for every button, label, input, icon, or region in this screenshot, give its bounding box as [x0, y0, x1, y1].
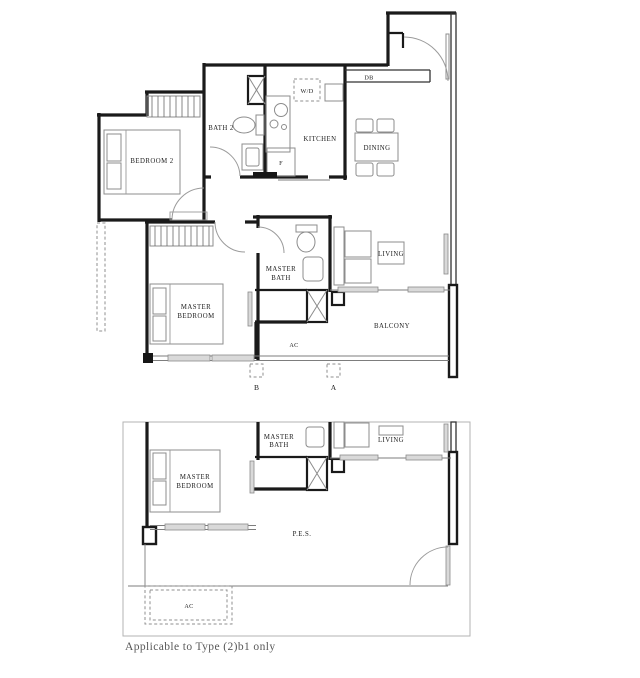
- marker-a-label: A: [331, 383, 337, 392]
- floorplan-canvas: DB: [0, 0, 640, 678]
- entrance-door: [404, 34, 449, 81]
- pes-label: P.E.S.: [293, 531, 312, 538]
- master-bedroom-door-leaf: [248, 292, 252, 326]
- corridor-stub: [170, 212, 207, 220]
- kitchen-hob-small: [282, 125, 287, 130]
- lower-bath-sink: [306, 427, 324, 447]
- upper-walls-path: [97, 12, 456, 363]
- upper-right-wall-thick: [449, 285, 457, 377]
- marker-b-label: B: [254, 383, 259, 392]
- lower-window-bar: [208, 524, 248, 530]
- wall-stub: [143, 353, 153, 363]
- master-bath-sink: [303, 257, 323, 281]
- balcony: BALCONY AC: [143, 287, 450, 363]
- shaft-kitchen: [248, 76, 265, 104]
- shaft-side-box: [332, 292, 344, 305]
- master-bedroom-label-1: MASTER: [181, 304, 211, 311]
- lower-bed: [150, 450, 220, 512]
- lower-master-bath: MASTER BATH: [250, 427, 324, 493]
- washer-dryer: W/D: [294, 79, 320, 101]
- dining-label: DINING: [364, 145, 391, 152]
- lower-master-bath-label-2: BATH: [269, 442, 289, 449]
- pes-area: AC P.E.S.: [128, 531, 450, 624]
- lower-living: LIVING: [330, 422, 451, 460]
- master-bedroom-label-2: BEDROOM: [177, 313, 214, 320]
- living: LIVING: [334, 227, 448, 285]
- wd-label: W/D: [301, 88, 314, 95]
- upper-floor-plan: DB: [97, 12, 457, 392]
- living-sofa: [334, 227, 371, 285]
- master-bath-toilet: [296, 225, 317, 252]
- living-label: LIVING: [378, 251, 404, 258]
- sliding-door-panel: [338, 287, 378, 292]
- section-markers: B A: [250, 364, 340, 392]
- pes-gate-leaf: [446, 546, 450, 585]
- lower-master-bedroom-label-2: BEDROOM: [176, 483, 213, 490]
- lower-right-wall-thin: [451, 422, 456, 452]
- kitchen-hob-large: [270, 120, 278, 128]
- master-bedroom-wardrobe: [150, 226, 213, 246]
- master-bath-label-1: MASTER: [266, 266, 296, 273]
- sliding-door-panel: [408, 287, 444, 292]
- shaft-master-bath: [307, 290, 344, 322]
- dining: DINING: [355, 119, 398, 176]
- lower-master-bedroom: MASTER BEDROOM: [150, 450, 256, 530]
- living-window-bar: [444, 234, 448, 274]
- bath2-label: BATH 2: [208, 125, 234, 132]
- bedroom-window-bar: [168, 355, 210, 361]
- floorplan-page: DB: [0, 0, 640, 678]
- lower-coffee-table: [379, 426, 403, 435]
- lower-living-label: LIVING: [378, 437, 404, 444]
- kitchen-threshold: [253, 172, 277, 178]
- bath2-shower: [242, 144, 263, 170]
- dining-chair: [356, 163, 373, 176]
- upper-right-wall-thin: [451, 13, 456, 285]
- db-box: DB: [345, 70, 430, 82]
- kitchen-appliance: [325, 84, 343, 101]
- lower-sliding-panel: [406, 455, 442, 460]
- dining-chair: [356, 119, 373, 132]
- lower-shaft-side-box: [332, 459, 344, 472]
- master-bath-label-2: BATH: [271, 275, 291, 282]
- caption: Applicable to Type (2)b1 only: [125, 641, 275, 653]
- entrance-door-arc: [404, 37, 448, 81]
- lower-window-bar: [165, 524, 205, 530]
- lower-right-wall-thick: [449, 452, 457, 544]
- lower-bedroom-door-leaf: [250, 461, 254, 493]
- pes-gate-arc: [410, 547, 448, 585]
- fridge-label: F: [279, 160, 283, 167]
- bedroom2-door-arc: [172, 188, 204, 220]
- master-bedroom-door-arc: [215, 222, 245, 252]
- balcony-label: BALCONY: [374, 323, 410, 330]
- ac-ledge-label: AC: [289, 342, 298, 349]
- lower-ac-label: AC: [184, 603, 193, 610]
- dashed-ledge-strip: [97, 223, 105, 331]
- pes-ac-box: AC: [145, 586, 232, 624]
- dining-chair: [377, 119, 394, 132]
- lower-master-bath-label-1: MASTER: [264, 434, 294, 441]
- bedroom2-wardrobe: [147, 96, 200, 117]
- kitchen-sink: [275, 104, 288, 117]
- lower-sliding-panel: [340, 455, 378, 460]
- lower-window-bar-right: [444, 424, 448, 452]
- bedroom-window-bar: [212, 355, 254, 361]
- lower-master-bedroom-label-1: MASTER: [180, 474, 210, 481]
- lower-sofa: [334, 422, 369, 448]
- lower-floor-plan: MASTER BATH MASTER BEDROOM: [123, 422, 470, 636]
- bath2: BATH 2: [208, 115, 264, 176]
- dining-chair: [377, 163, 394, 176]
- master-bedroom: MASTER BEDROOM: [150, 212, 252, 344]
- kitchen-label: KITCHEN: [304, 136, 337, 143]
- master-bath: MASTER BATH: [258, 225, 323, 282]
- bath2-door-arc: [210, 147, 240, 176]
- master-bath-door-arc: [258, 227, 284, 253]
- lower-shaft: [307, 457, 344, 490]
- bath2-toilet: [233, 115, 264, 135]
- db-label: DB: [364, 75, 373, 82]
- bedroom2-label: BEDROOM 2: [130, 158, 173, 165]
